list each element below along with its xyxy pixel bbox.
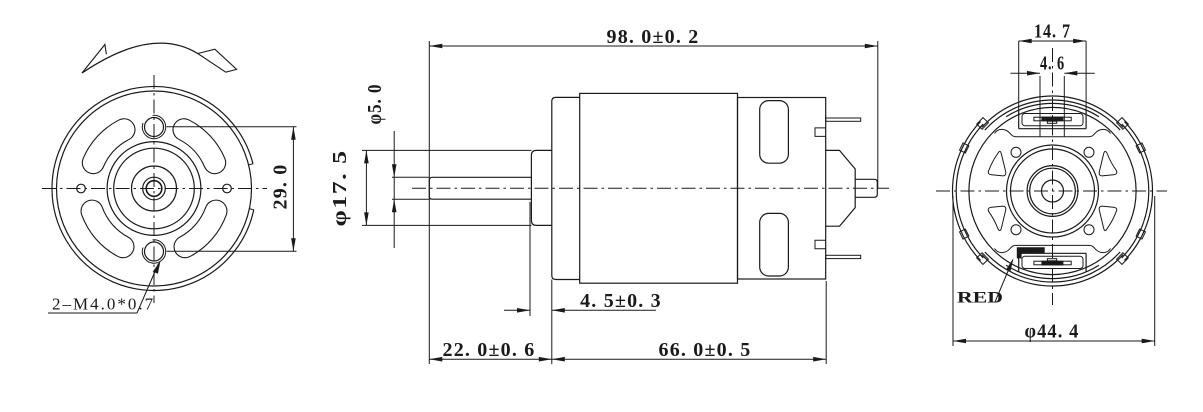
svg-text:14. 7: 14. 7: [1034, 21, 1071, 43]
svg-text:RED: RED: [957, 290, 1003, 307]
svg-text:66. 0±0. 5: 66. 0±0. 5: [659, 339, 752, 361]
svg-text:2–M4.0*0.7: 2–M4.0*0.7: [52, 295, 155, 314]
svg-text:φ17. 5: φ17. 5: [329, 149, 351, 226]
svg-text:4. 6: 4. 6: [1040, 53, 1065, 75]
svg-text:φ44. 4: φ44. 4: [1025, 320, 1080, 342]
svg-text:98. 0±0. 2: 98. 0±0. 2: [607, 26, 700, 48]
svg-text:φ5. 0: φ5. 0: [364, 84, 386, 125]
svg-text:4. 5±0. 3: 4. 5±0. 3: [580, 290, 662, 312]
svg-text:29. 0: 29. 0: [270, 164, 292, 210]
svg-text:22. 0±0. 6: 22. 0±0. 6: [443, 339, 536, 361]
